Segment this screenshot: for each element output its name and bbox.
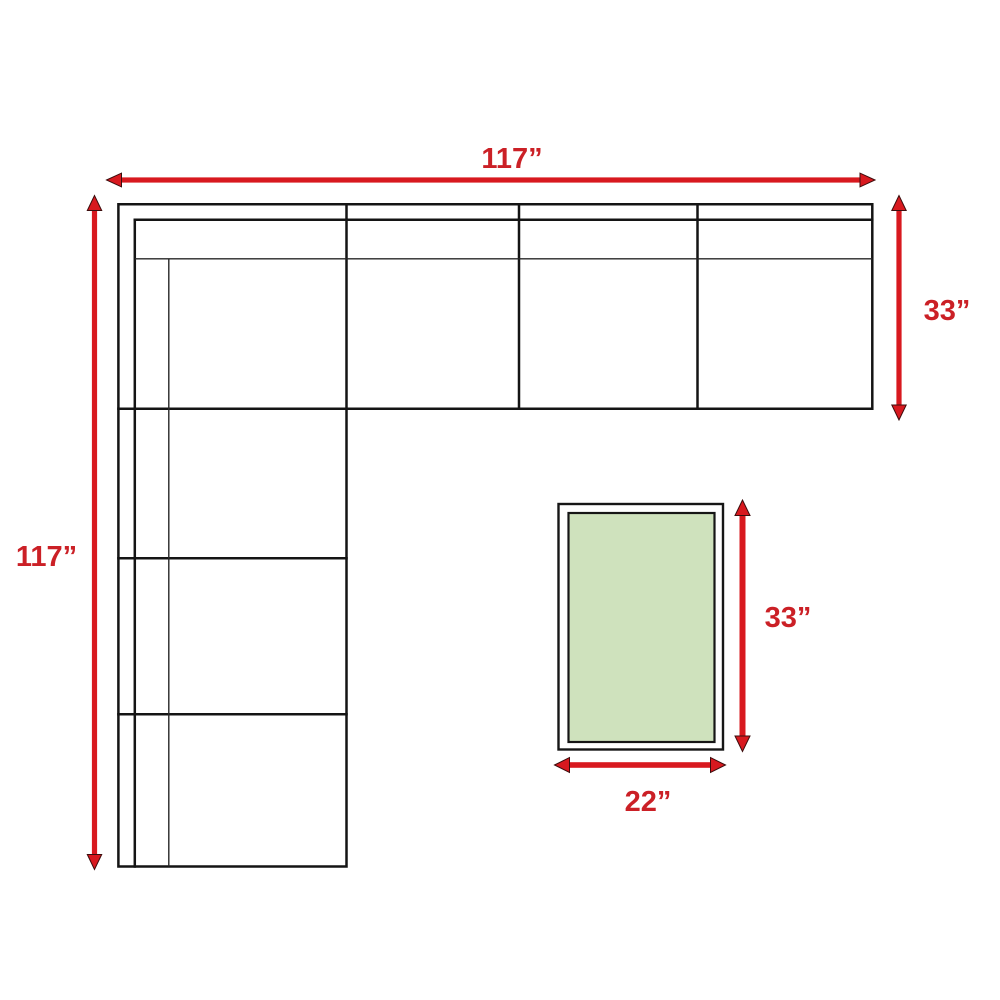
svg-text:22”: 22” <box>625 786 672 818</box>
svg-text:33”: 33” <box>765 602 812 634</box>
svg-text:117”: 117” <box>481 143 542 175</box>
svg-text:117”: 117” <box>16 541 77 573</box>
svg-text:33”: 33” <box>924 295 971 327</box>
